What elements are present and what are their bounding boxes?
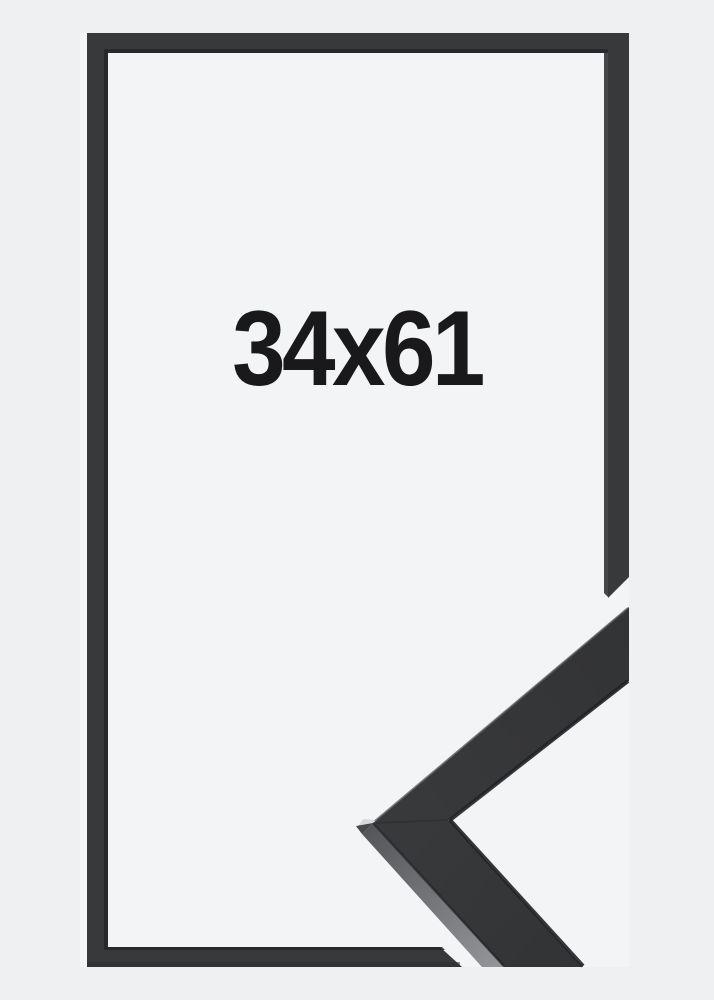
frame-left-bar-inner-edge <box>104 49 108 950</box>
frame-bottom-bar-inner-edge <box>105 947 445 950</box>
frame-top-bar-inner-edge <box>105 49 608 53</box>
frame-bottom-bar-outer-shade <box>87 962 460 967</box>
frame-outer-highlight <box>80 33 87 967</box>
product-image: 34x61 <box>0 0 714 1000</box>
size-label: 34x61 <box>36 295 679 402</box>
frame-graphic <box>0 0 714 1000</box>
